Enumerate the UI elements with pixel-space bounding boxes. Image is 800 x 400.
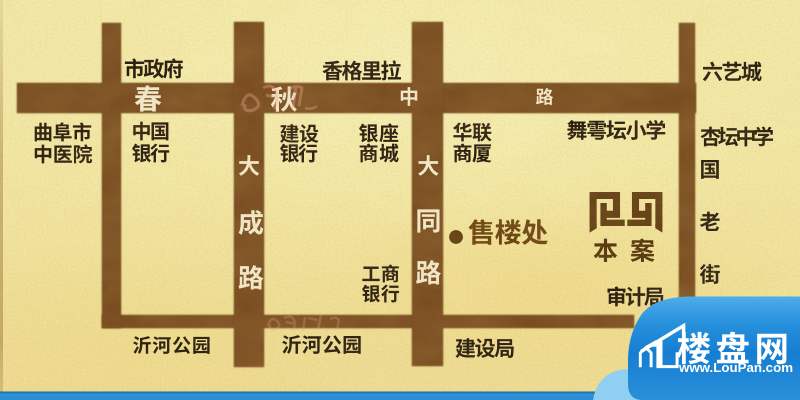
svg-text:www.LouPan.com: www.LouPan.com [678, 360, 793, 375]
